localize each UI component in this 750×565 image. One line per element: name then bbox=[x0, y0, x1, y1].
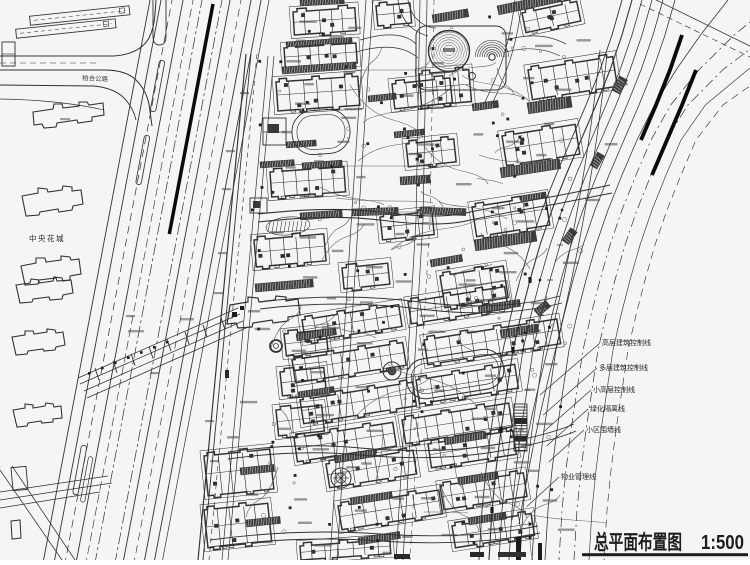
svg-text:多层建筑控制线: 多层建筑控制线 bbox=[599, 363, 648, 372]
svg-text:1:500: 1:500 bbox=[701, 532, 744, 554]
svg-text:小区围墙线: 小区围墙线 bbox=[586, 425, 621, 434]
svg-text:中央花城: 中央花城 bbox=[29, 233, 65, 243]
svg-text:高层建筑控制线: 高层建筑控制线 bbox=[602, 338, 651, 347]
svg-text:总平面布置图: 总平面布置图 bbox=[594, 530, 682, 554]
svg-text:绿化隔离线: 绿化隔离线 bbox=[590, 404, 625, 413]
svg-text:小高层控制线: 小高层控制线 bbox=[593, 385, 635, 394]
svg-text:物业管理线: 物业管理线 bbox=[561, 472, 596, 481]
